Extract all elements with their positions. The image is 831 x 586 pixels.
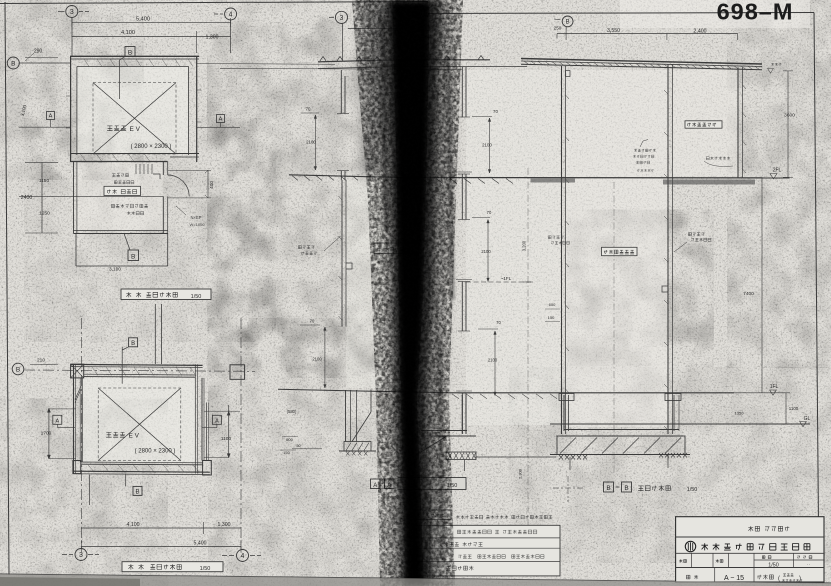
svg-text:3,550: 3,550: [607, 28, 620, 34]
svg-text:3: 3: [79, 552, 83, 559]
svg-text:E V: E V: [129, 433, 140, 440]
svg-text:1/50: 1/50: [191, 294, 202, 300]
svg-text:50: 50: [296, 444, 300, 448]
svg-text:2400: 2400: [21, 195, 33, 201]
svg-text:1150: 1150: [39, 178, 50, 184]
svg-text:A: A: [373, 483, 377, 489]
svg-text:B: B: [135, 489, 139, 495]
svg-text:A: A: [215, 418, 219, 424]
svg-text:1,300: 1,300: [206, 35, 219, 41]
svg-text:1250: 1250: [39, 211, 50, 217]
svg-text:600: 600: [286, 437, 293, 442]
svg-text:B: B: [131, 341, 135, 347]
svg-text:250: 250: [554, 25, 562, 30]
svg-text:1FL: 1FL: [770, 384, 779, 390]
svg-text:5,400: 5,400: [136, 17, 150, 23]
svg-text:70: 70: [496, 320, 501, 325]
svg-text:2FL: 2FL: [773, 167, 782, 173]
svg-text:2100: 2100: [482, 143, 492, 148]
svg-text:4,100: 4,100: [121, 30, 135, 36]
svg-text:698–M: 698–M: [717, 0, 794, 25]
svg-text:600: 600: [549, 302, 556, 307]
svg-text:210: 210: [37, 358, 45, 364]
svg-text:B: B: [606, 485, 610, 492]
svg-text:1700: 1700: [41, 431, 52, 437]
svg-text:4,100: 4,100: [127, 522, 140, 528]
svg-text:3600: 3600: [784, 113, 795, 119]
svg-text:N×EP: N×EP: [190, 215, 201, 220]
svg-text:1/50: 1/50: [687, 487, 698, 493]
svg-text:A: A: [49, 114, 53, 120]
svg-text:1100: 1100: [221, 436, 232, 442]
svg-text:400: 400: [209, 181, 214, 189]
svg-text:3,100: 3,100: [109, 266, 121, 272]
svg-text:W=1000: W=1000: [189, 222, 205, 227]
svg-text:2100: 2100: [312, 357, 322, 362]
svg-text:1,300: 1,300: [218, 522, 231, 528]
svg-text:): ): [799, 576, 801, 582]
svg-text:4: 4: [241, 553, 245, 560]
svg-text:(580): (580): [287, 409, 297, 414]
svg-text:4: 4: [229, 11, 233, 18]
svg-text:E V: E V: [130, 126, 141, 133]
svg-text:1/50: 1/50: [768, 562, 779, 568]
svg-text:70: 70: [487, 210, 492, 215]
svg-text:1/50: 1/50: [200, 566, 211, 572]
svg-text:290: 290: [34, 49, 43, 55]
svg-text:70: 70: [493, 109, 498, 114]
svg-text:B: B: [11, 60, 15, 67]
svg-text:~1FL: ~1FL: [501, 276, 512, 281]
svg-text:2100: 2100: [481, 249, 491, 254]
svg-text:A − 15: A − 15: [724, 575, 744, 582]
svg-text:150: 150: [283, 450, 290, 455]
svg-text:B: B: [131, 253, 135, 260]
svg-text:70: 70: [310, 319, 315, 324]
svg-text:B: B: [16, 366, 20, 373]
svg-text:2,400: 2,400: [694, 29, 707, 35]
svg-text:1100: 1100: [789, 406, 799, 411]
svg-text:3: 3: [340, 15, 344, 22]
svg-text:B: B: [128, 49, 132, 56]
svg-text:( 2800 × 2300 ): ( 2800 × 2300 ): [131, 144, 172, 150]
svg-text:1350: 1350: [735, 411, 745, 416]
svg-text:2100: 2100: [488, 358, 498, 363]
svg-text:B: B: [566, 20, 570, 26]
svg-text:5,400: 5,400: [194, 541, 207, 547]
svg-text:7400: 7400: [743, 291, 754, 297]
svg-text:3: 3: [70, 9, 74, 16]
svg-text:2100: 2100: [306, 140, 316, 145]
svg-text:GL: GL: [804, 416, 811, 422]
svg-text:A: A: [219, 117, 223, 123]
svg-text:( 2800 × 2300 ): ( 2800 × 2300 ): [135, 449, 176, 455]
svg-text:(: (: [778, 576, 780, 582]
svg-text:3,200: 3,200: [522, 240, 527, 251]
svg-text:2,300: 2,300: [518, 468, 523, 479]
svg-text:B: B: [624, 485, 628, 492]
svg-text:70: 70: [306, 107, 311, 112]
svg-text:. .: . .: [807, 561, 811, 566]
svg-text:150: 150: [548, 315, 555, 320]
svg-text:A: A: [55, 418, 59, 424]
